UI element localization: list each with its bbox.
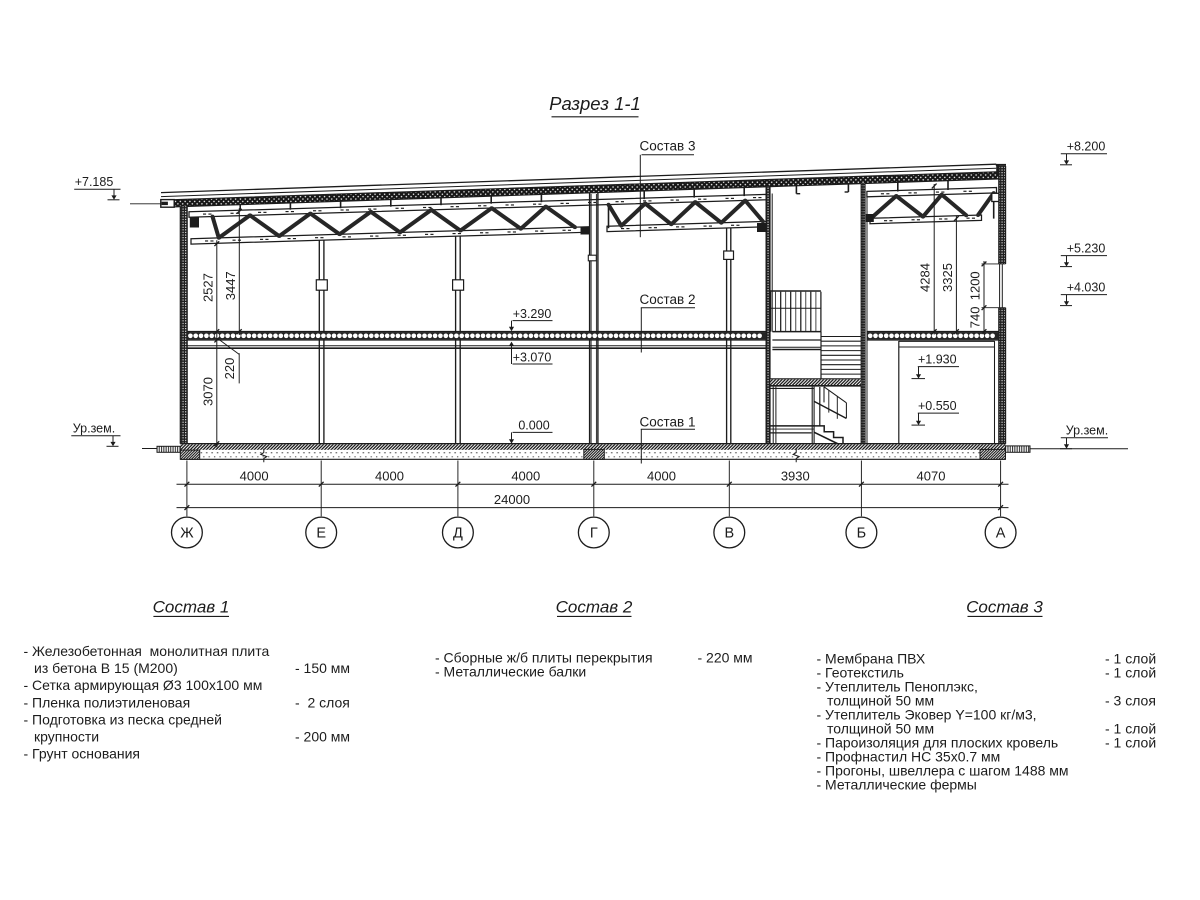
svg-text:А: А [996,526,1006,542]
svg-text:4070: 4070 [917,469,946,484]
svg-text:2527: 2527 [200,273,215,302]
svg-text:+5.230: +5.230 [1067,241,1106,255]
svg-text:4000: 4000 [511,469,540,484]
svg-text:Состав 1: Состав 1 [640,414,696,429]
svg-text:- 1 слой: - 1 слой [1105,735,1156,751]
svg-text:- 150 мм: - 150 мм [295,660,350,676]
svg-text:Е: Е [316,526,326,542]
svg-text:3070: 3070 [200,377,215,406]
svg-text:В: В [724,526,734,542]
svg-text:- 200 мм: - 200 мм [295,729,350,745]
svg-text:3447: 3447 [223,271,238,300]
svg-text:Д: Д [453,526,463,542]
svg-text:Ур.зем.: Ур.зем. [1066,423,1108,437]
svg-text:4284: 4284 [918,263,933,292]
svg-text:- Пленка полиэтиленовая: - Пленка полиэтиленовая [24,694,191,710]
svg-text:0.000: 0.000 [518,418,549,432]
svg-text:- Железобетонная монолитная п: - Железобетонная монолитная плита [24,643,270,659]
svg-text:Б: Б [857,526,867,542]
svg-text:- Подготовка из песка средней: - Подготовка из песка средней [24,711,223,727]
svg-text:Состав 3: Состав 3 [966,598,1043,617]
svg-text:из бетона В 15 (М200): из бетона В 15 (М200) [34,660,178,676]
svg-text:Состав 1: Состав 1 [153,598,230,617]
svg-text:3325: 3325 [940,263,955,292]
svg-text:4000: 4000 [240,469,269,484]
svg-text:Ур.зем.: Ур.зем. [73,422,115,436]
svg-text:740: 740 [968,307,983,329]
svg-text:- Металлические балки: - Металлические балки [435,664,586,680]
svg-text:24000: 24000 [494,492,530,507]
svg-text:+4.030: +4.030 [1067,280,1106,294]
svg-text:- 2 слоя: - 2 слоя [295,694,350,710]
svg-text:1200: 1200 [968,271,983,300]
svg-text:- Металлические фермы: - Металлические фермы [817,777,977,793]
svg-text:Состав 3: Состав 3 [640,139,696,154]
svg-text:+8.200: +8.200 [1067,140,1106,154]
svg-text:4000: 4000 [647,469,676,484]
svg-text:4000: 4000 [375,469,404,484]
svg-text:- Сетка армирующая Ø3 100х100: - Сетка армирующая Ø3 100х100 мм [24,677,263,693]
svg-text:+0.550: +0.550 [918,399,957,413]
svg-text:220: 220 [222,358,237,380]
svg-text:+3.070: +3.070 [513,350,552,364]
svg-text:Состав 2: Состав 2 [556,598,633,617]
svg-text:- Грунт основания: - Грунт основания [24,746,141,762]
svg-text:Разрез 1-1: Разрез 1-1 [549,93,641,114]
svg-text:Состав 2: Состав 2 [640,292,696,307]
svg-text:Ж: Ж [180,526,194,542]
svg-text:Г: Г [590,526,598,542]
svg-text:- 1 слой: - 1 слой [1105,665,1156,681]
svg-text:+3.290: +3.290 [513,307,552,321]
svg-text:крупности: крупности [34,729,99,745]
svg-text:- 3 слоя: - 3 слоя [1105,693,1156,709]
svg-text:- 220 мм: - 220 мм [698,650,753,666]
svg-text:+1.930: +1.930 [918,352,957,366]
svg-text:3930: 3930 [781,469,810,484]
svg-text:+7.185: +7.185 [75,175,114,189]
